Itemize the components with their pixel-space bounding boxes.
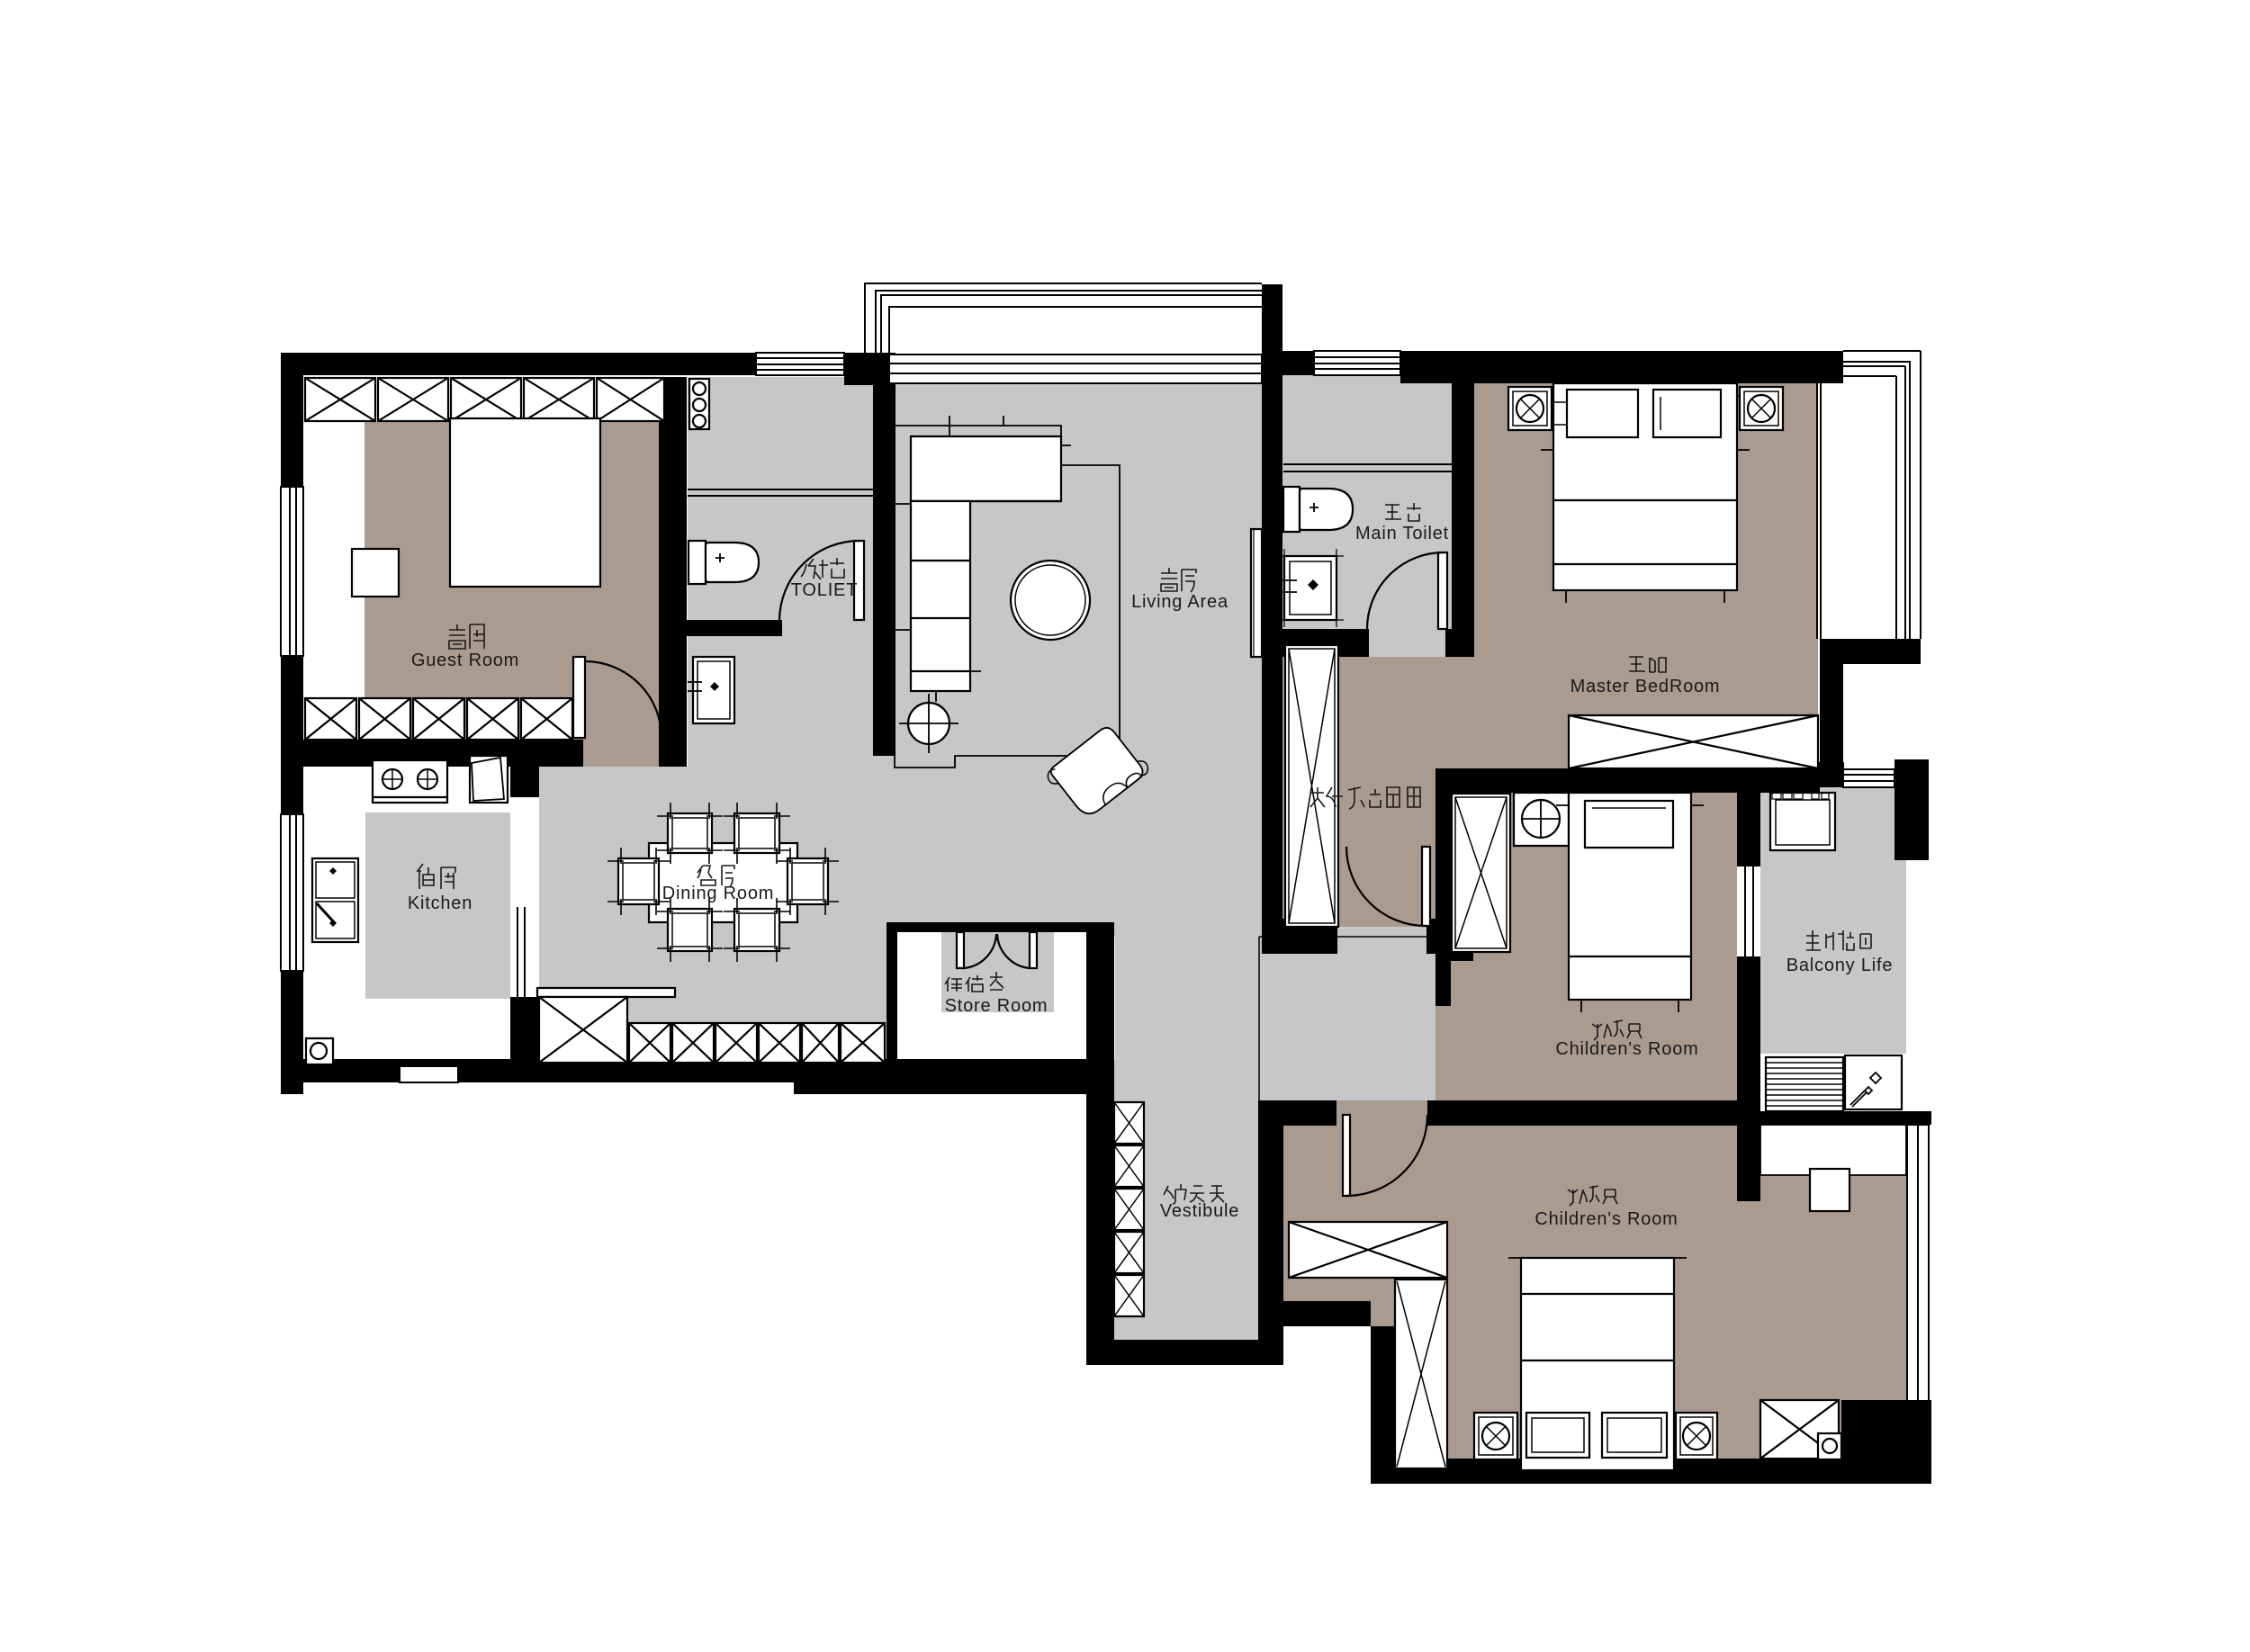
svg-text:Vestibule: Vestibule	[1160, 1201, 1239, 1221]
svg-text:Children's Room: Children's Room	[1534, 1209, 1678, 1229]
svg-text:Master BedRoom: Master BedRoom	[1570, 677, 1721, 696]
svg-text:Kitchen: Kitchen	[408, 893, 472, 913]
svg-text:Main Toilet: Main Toilet	[1355, 524, 1449, 543]
svg-text:TOLIET: TOLIET	[791, 580, 858, 600]
svg-text:Store Room: Store Room	[945, 996, 1048, 1016]
svg-text:Balcony Life: Balcony Life	[1786, 956, 1894, 975]
svg-text:Dining Room: Dining Room	[662, 884, 774, 903]
svg-text:Children's Room: Children's Room	[1555, 1039, 1698, 1059]
svg-text:Guest Room: Guest Room	[411, 651, 519, 670]
svg-text:Living Area: Living Area	[1131, 592, 1228, 612]
